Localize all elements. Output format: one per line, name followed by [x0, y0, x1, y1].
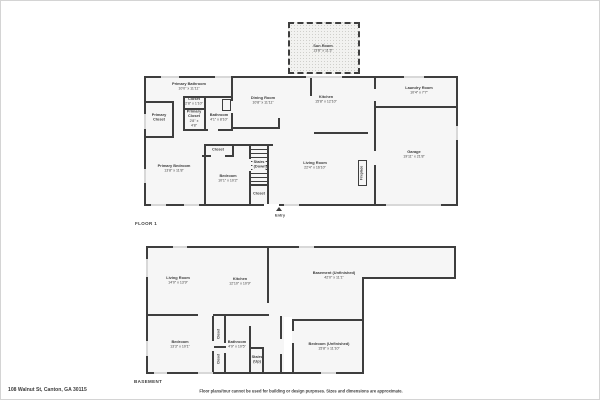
wall: [212, 351, 214, 374]
basement-interior-top: [146, 246, 456, 279]
floor-plan-page: Fireplace Sun Room 13'8" x 11'3" Primary…: [0, 0, 600, 400]
room-label-garage: Garage 19'11" x 21'8": [403, 150, 424, 160]
wall: [280, 316, 282, 339]
entry-arrow-icon: [276, 207, 282, 211]
wall: [249, 146, 251, 159]
room-label-primary-closet-left: Primary Closet: [151, 113, 167, 123]
shower-fixture: [222, 99, 231, 111]
room-label-basement-unfinished: Basement (Unfinished) 42'0" x 11'1": [313, 271, 355, 281]
wall: [249, 326, 251, 374]
window: [146, 341, 148, 356]
wall: [214, 346, 226, 348]
room-label-kitchen: Kitchen 15'8" x 12'10": [315, 95, 337, 105]
room-label-stairs-up: Stairs (Up): [251, 355, 263, 365]
room-label-bsmt-closet-a: Closet: [217, 329, 220, 339]
wall: [310, 76, 312, 96]
wall: [202, 155, 211, 157]
wall: [144, 76, 146, 206]
wall: [362, 321, 364, 374]
room-label-bsmt-kitchen: Kitchen 12'10" x 10'9": [229, 277, 251, 287]
window: [144, 169, 146, 183]
wall: [292, 343, 294, 374]
wall: [267, 246, 269, 303]
wall: [280, 354, 282, 374]
window: [215, 76, 231, 78]
room-label-closet-stairs: Closet: [253, 191, 265, 196]
wall: [218, 129, 233, 131]
wall: [224, 316, 226, 343]
room-label-primary-closet-small: Primary Closet 2'8" x 4'8": [186, 109, 202, 128]
room-label-primary-bedroom: Primary Bedroom 13'8" x 11'8": [158, 164, 191, 174]
wall: [314, 132, 368, 134]
room-label-bsmt-living-room: Living Room 14'0" x 13'9": [166, 276, 190, 286]
property-address: 108 Walnut St, Canton, GA 30115: [8, 387, 87, 392]
room-label-bsmt-bathroom: Bathroom 4'9" x 10'5": [228, 340, 246, 350]
wall: [278, 118, 280, 129]
wall: [146, 136, 174, 138]
wall: [374, 165, 376, 206]
window: [321, 372, 336, 374]
window: [284, 204, 299, 206]
wall: [374, 101, 376, 151]
window: [144, 114, 146, 129]
wall: [267, 144, 269, 204]
wall: [292, 319, 294, 331]
wall: [183, 129, 208, 131]
wall: [204, 144, 273, 146]
room-label-living-room: Living Room 22'4" x 16'10": [303, 161, 327, 171]
room-label-closet-small: Closet 2'8" x 1'10": [185, 97, 203, 107]
window: [184, 204, 199, 206]
window: [146, 259, 148, 277]
wall: [456, 76, 458, 206]
garage-door: [386, 204, 441, 206]
wall: [232, 144, 234, 157]
window: [198, 372, 213, 374]
disclaimer-text: Floor plans/tour cannot be used for buil…: [199, 390, 402, 394]
window: [173, 246, 187, 248]
wall: [374, 106, 458, 108]
wall: [172, 101, 174, 138]
room-label-bathroom: Bathroom 4'1" x 8'10": [210, 113, 228, 123]
floor1-title: FLOOR 1: [135, 222, 157, 227]
wall: [362, 277, 364, 321]
wall: [204, 96, 206, 131]
wall: [374, 76, 376, 89]
room-label-dining-room: Dining Room 10'8" x 11'11": [251, 96, 275, 106]
basement-title: BASEMENT: [134, 380, 162, 385]
wall: [212, 316, 214, 341]
window: [299, 246, 314, 248]
exterior-gap: [284, 317, 292, 374]
window: [161, 76, 179, 78]
window: [404, 76, 424, 78]
window: [306, 76, 342, 78]
room-label-bedroom: Bedroom 10'1" x 10'2": [218, 174, 238, 184]
room-label-primary-bathroom: Primary Bathroom 10'0" x 11'11": [172, 82, 206, 92]
window: [154, 372, 167, 374]
room-label-laundry-room: Laundry Room 10'4" x 7'7": [405, 86, 433, 96]
fireplace-label: Fireplace: [360, 166, 363, 180]
room-label-bedroom-unfinished: Bedroom (Unfinished) 15'8" x 11'10": [309, 342, 350, 352]
wall: [292, 319, 364, 321]
window: [151, 204, 166, 206]
wall: [454, 246, 456, 279]
room-label-bsmt-bedroom: Bedroom 13'3" x 10'1": [170, 340, 190, 350]
entry-door-gap: [264, 204, 279, 206]
window: [456, 126, 458, 140]
wall: [224, 353, 226, 374]
room-label-bsmt-closet-b: Closet: [217, 354, 220, 364]
room-label-sun-room: Sun Room 13'8" x 11'3": [313, 44, 333, 54]
entry-label: Entry: [275, 213, 285, 218]
wall: [233, 127, 280, 129]
room-label-stairs-down: Stairs (Down): [252, 160, 265, 170]
wall: [251, 184, 269, 186]
wall: [146, 101, 174, 103]
wall: [146, 314, 198, 316]
room-label-closet-bedroom: Closet: [212, 147, 224, 152]
wall: [364, 277, 456, 279]
wall: [213, 314, 269, 316]
wall: [249, 171, 251, 204]
